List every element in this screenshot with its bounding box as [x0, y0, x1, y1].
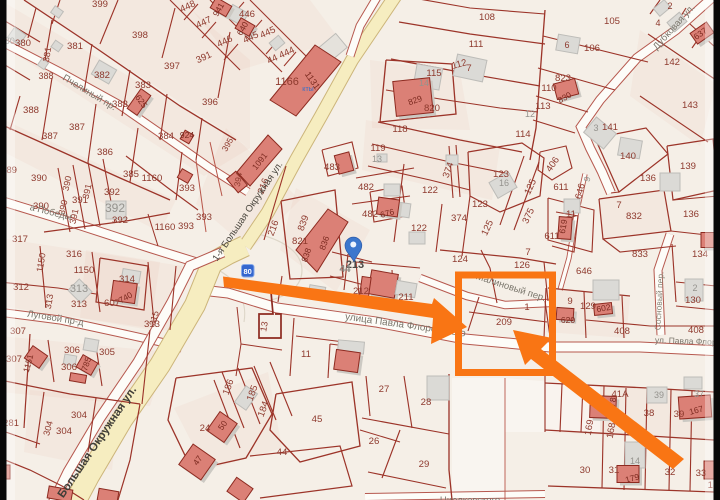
- svg-text:30: 30: [580, 465, 591, 476]
- svg-text:821: 821: [292, 236, 308, 247]
- svg-text:382: 382: [94, 70, 110, 81]
- svg-text:388: 388: [38, 71, 53, 81]
- svg-text:7: 7: [525, 247, 530, 258]
- svg-text:44: 44: [339, 264, 351, 275]
- svg-text:114: 114: [515, 129, 531, 140]
- svg-text:482: 482: [358, 182, 374, 193]
- svg-text:13: 13: [258, 321, 270, 333]
- svg-text:646: 646: [576, 266, 592, 277]
- svg-text:387: 387: [42, 131, 58, 142]
- svg-text:306: 306: [61, 362, 77, 373]
- svg-text:316: 316: [66, 249, 82, 260]
- svg-text:33: 33: [696, 468, 707, 479]
- svg-text:6: 6: [564, 40, 569, 50]
- svg-text:38: 38: [644, 408, 655, 419]
- svg-text:314: 314: [119, 274, 136, 285]
- svg-text:393: 393: [178, 221, 194, 232]
- svg-text:620: 620: [561, 315, 575, 325]
- svg-text:27: 27: [379, 384, 390, 395]
- svg-text:122: 122: [411, 223, 427, 234]
- svg-text:31: 31: [609, 465, 620, 476]
- svg-text:482: 482: [362, 209, 378, 220]
- svg-text:304: 304: [56, 426, 73, 437]
- svg-text:388: 388: [23, 105, 39, 116]
- svg-text:80: 80: [244, 267, 252, 276]
- svg-text:кты: кты: [302, 86, 313, 93]
- svg-text:374: 374: [451, 213, 468, 224]
- svg-text:381: 381: [67, 41, 83, 52]
- svg-text:119: 119: [370, 143, 385, 154]
- svg-text:446: 446: [239, 9, 255, 20]
- svg-text:384: 384: [158, 131, 175, 142]
- svg-text:140: 140: [620, 151, 636, 162]
- svg-text:111: 111: [469, 39, 484, 50]
- svg-text:387: 387: [69, 122, 85, 133]
- svg-text:385: 385: [123, 169, 139, 180]
- svg-text:823: 823: [555, 73, 571, 84]
- svg-text:1150: 1150: [74, 265, 95, 276]
- svg-text:392: 392: [112, 215, 128, 226]
- svg-text:129: 129: [580, 301, 596, 312]
- svg-text:29: 29: [419, 459, 430, 470]
- svg-text:607: 607: [104, 298, 120, 309]
- svg-text:24: 24: [200, 423, 211, 434]
- svg-text:4: 4: [655, 18, 660, 28]
- svg-text:26: 26: [369, 436, 380, 447]
- svg-text:408: 408: [614, 326, 630, 337]
- svg-text:11: 11: [566, 209, 576, 220]
- svg-text:44: 44: [277, 447, 288, 458]
- svg-text:7: 7: [616, 200, 621, 211]
- svg-text:16: 16: [499, 178, 509, 188]
- svg-text:9: 9: [567, 296, 572, 307]
- svg-text:399: 399: [92, 0, 108, 10]
- svg-text:126: 126: [514, 260, 530, 271]
- svg-text:304: 304: [71, 410, 88, 421]
- svg-text:14: 14: [630, 456, 640, 466]
- svg-text:392: 392: [105, 201, 125, 215]
- svg-text:832: 832: [626, 211, 642, 222]
- svg-text:110: 110: [541, 83, 556, 94]
- svg-text:37: 37: [694, 389, 704, 399]
- svg-text:118: 118: [392, 124, 407, 135]
- svg-text:306: 306: [64, 345, 80, 356]
- svg-text:383: 383: [135, 80, 151, 91]
- svg-text:390: 390: [31, 173, 47, 184]
- svg-text:408: 408: [688, 325, 704, 336]
- svg-text:392: 392: [104, 187, 120, 198]
- svg-text:2: 2: [667, 1, 672, 11]
- svg-text:398: 398: [132, 30, 148, 41]
- svg-text:3: 3: [593, 123, 598, 133]
- svg-text:386: 386: [97, 147, 113, 158]
- svg-text:124: 124: [452, 254, 469, 265]
- svg-text:141: 141: [602, 122, 618, 133]
- svg-text:313: 313: [71, 299, 87, 310]
- svg-text:139: 139: [680, 161, 696, 172]
- svg-text:143: 143: [682, 100, 698, 111]
- svg-text:113: 113: [535, 101, 550, 112]
- svg-text:Циолковского: Циолковского: [440, 495, 500, 500]
- svg-text:142: 142: [664, 57, 680, 68]
- svg-text:391: 391: [72, 195, 88, 206]
- svg-text:13: 13: [372, 154, 382, 164]
- svg-text:380: 380: [15, 38, 31, 49]
- svg-text:1: 1: [524, 302, 529, 313]
- svg-text:39: 39: [674, 409, 685, 420]
- svg-text:130: 130: [685, 295, 701, 306]
- svg-text:11: 11: [301, 349, 311, 360]
- svg-text:123: 123: [472, 199, 488, 210]
- svg-text:108: 108: [479, 12, 495, 23]
- svg-text:2: 2: [692, 283, 697, 293]
- svg-text:483: 483: [324, 162, 340, 173]
- svg-text:122: 122: [422, 185, 438, 196]
- svg-text:14: 14: [419, 78, 429, 88]
- svg-text:833: 833: [632, 249, 648, 260]
- svg-text:45: 45: [312, 414, 323, 425]
- svg-text:305: 305: [99, 347, 115, 358]
- svg-text:136: 136: [683, 209, 699, 220]
- svg-text:393: 393: [196, 212, 212, 223]
- svg-text:396: 396: [202, 97, 218, 108]
- svg-text:820: 820: [424, 103, 440, 114]
- svg-text:136: 136: [640, 173, 656, 184]
- svg-text:105: 105: [604, 16, 620, 27]
- svg-text:12: 12: [525, 109, 535, 119]
- svg-text:312: 312: [13, 282, 29, 293]
- svg-text:313: 313: [70, 283, 88, 295]
- svg-text:397: 397: [164, 61, 180, 72]
- svg-text:1160: 1160: [155, 222, 176, 233]
- svg-text:106: 106: [584, 43, 600, 54]
- svg-text:39: 39: [654, 390, 664, 400]
- svg-text:28: 28: [421, 397, 432, 408]
- svg-text:32: 32: [665, 467, 676, 478]
- svg-text:393: 393: [179, 183, 195, 194]
- svg-text:1166: 1166: [275, 76, 299, 88]
- svg-text:611: 611: [553, 182, 568, 193]
- svg-text:209: 209: [496, 317, 512, 328]
- svg-text:924: 924: [180, 130, 194, 140]
- svg-text:1160: 1160: [142, 173, 163, 184]
